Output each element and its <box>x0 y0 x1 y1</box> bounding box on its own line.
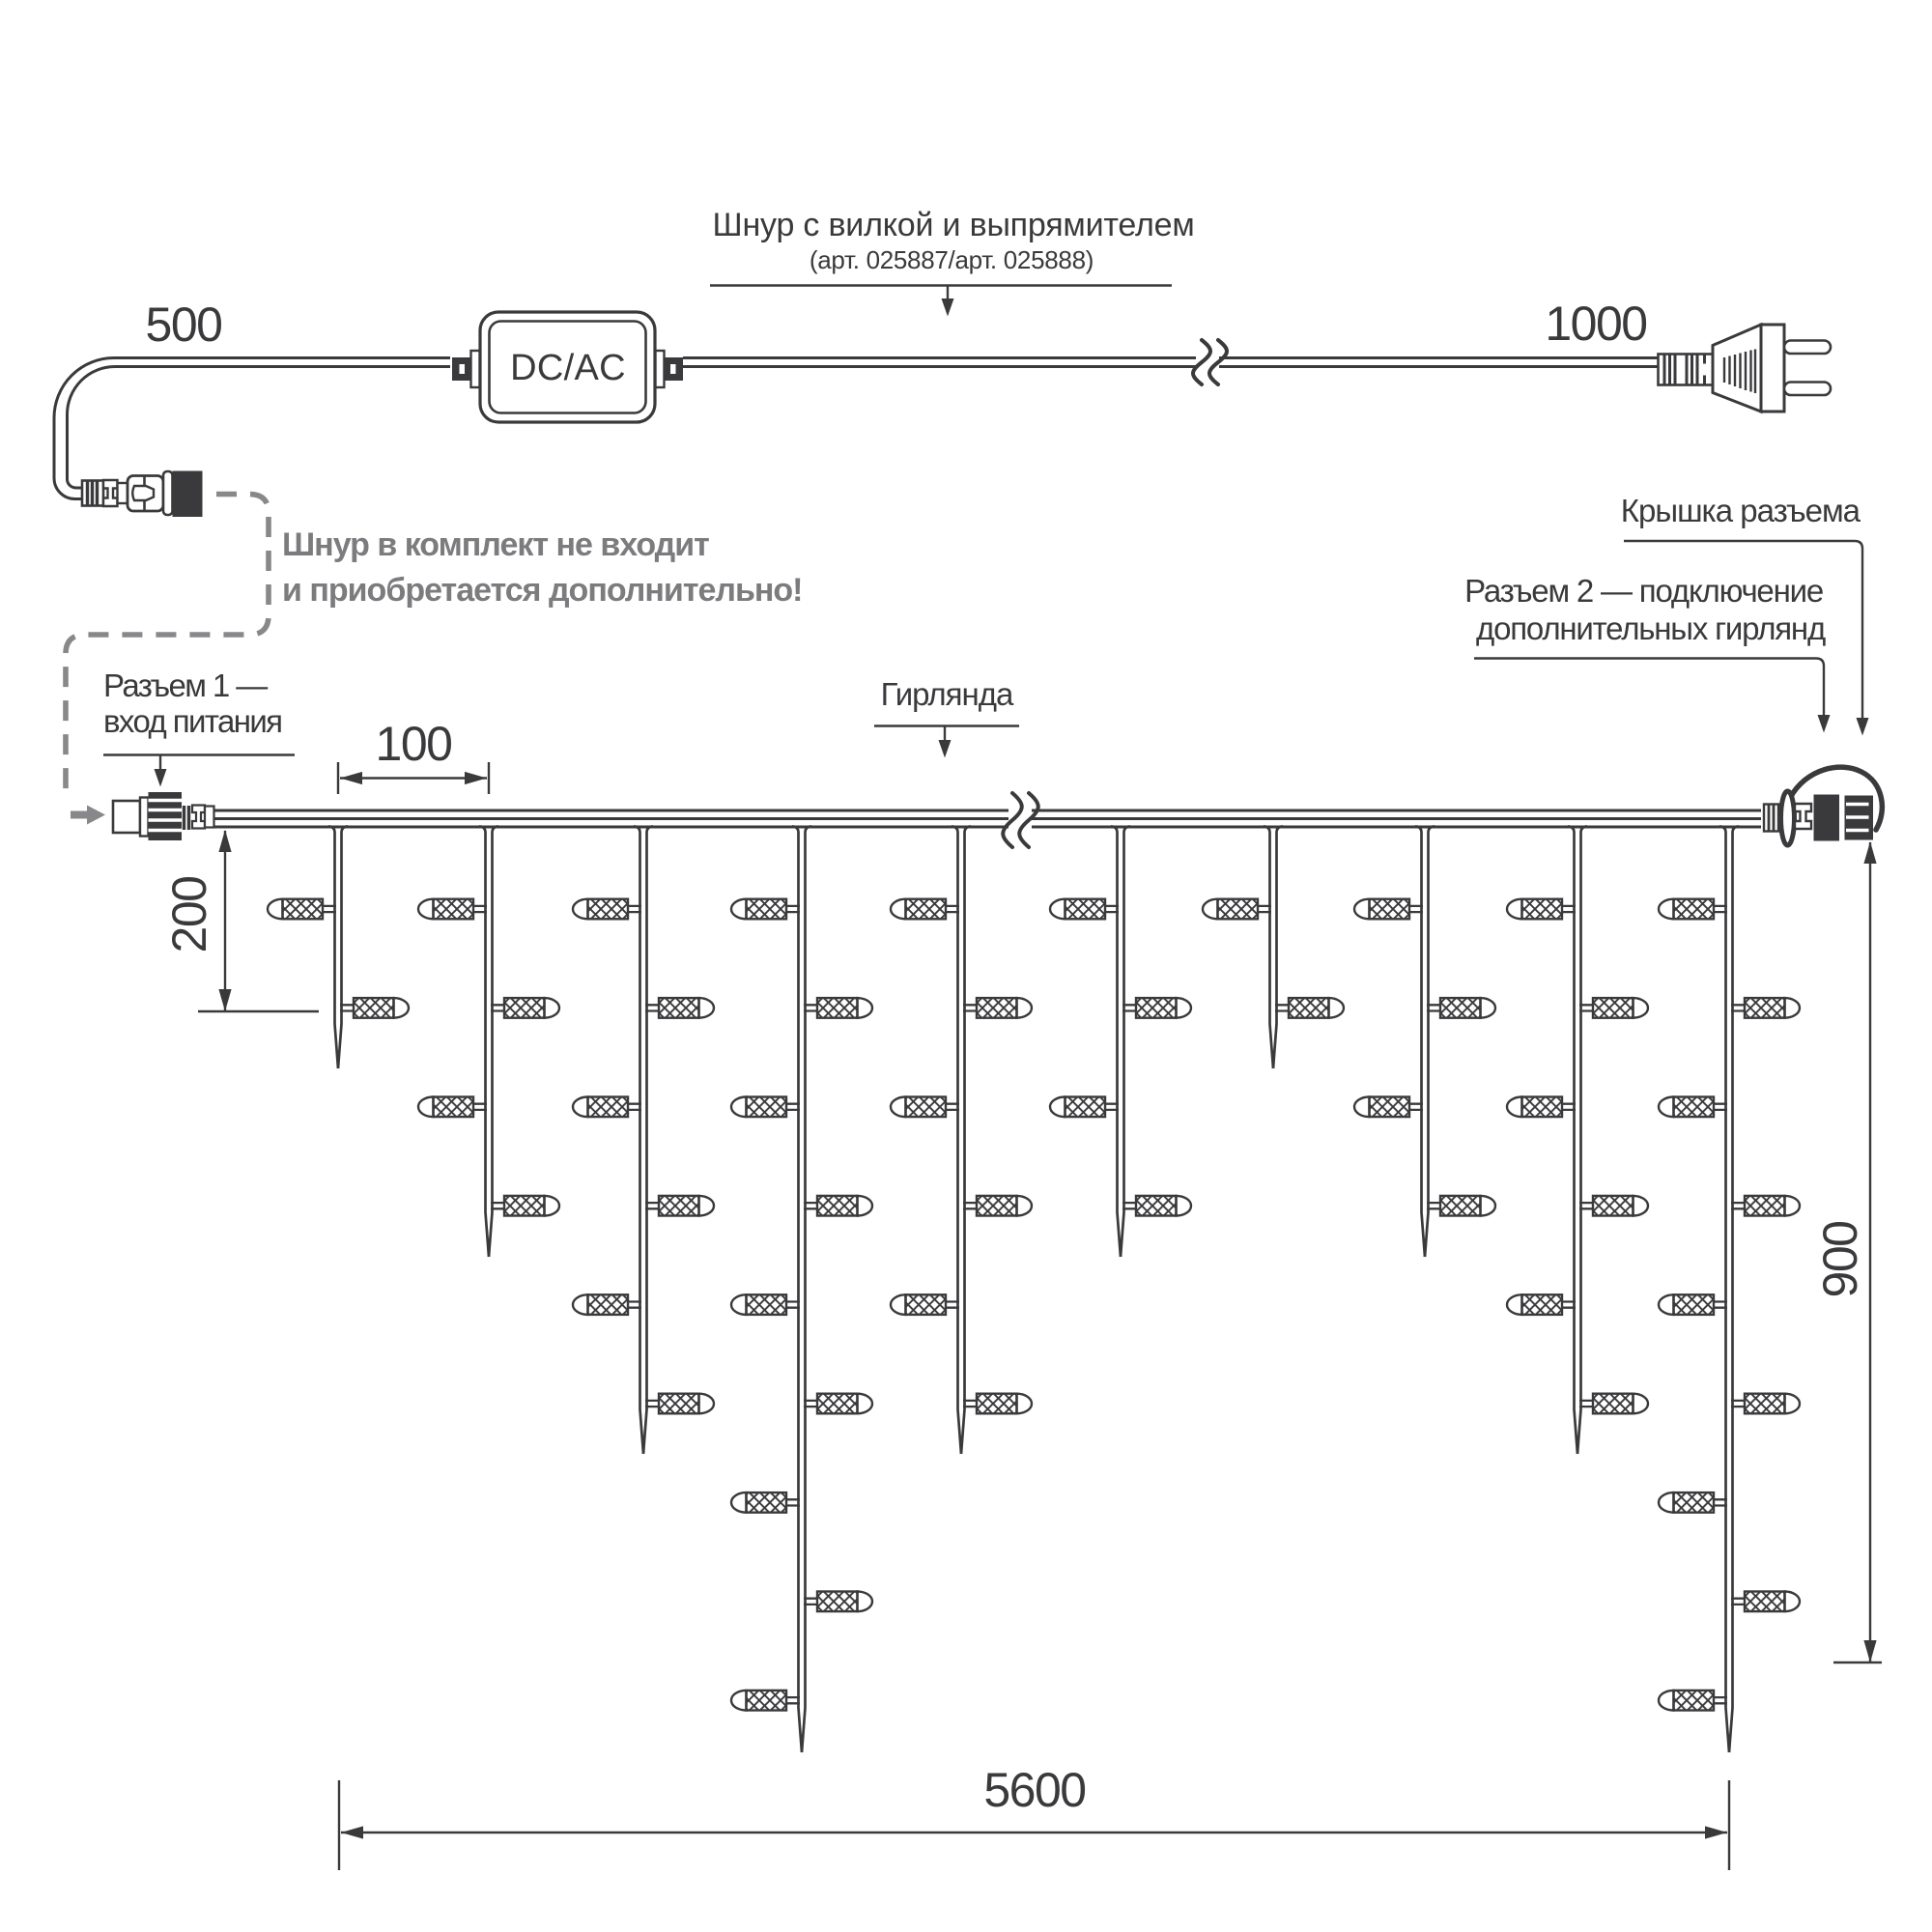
svg-text:5600: 5600 <box>983 1763 1085 1817</box>
svg-text:DC/AC: DC/AC <box>510 348 626 388</box>
svg-text:(арт. 025887/арт. 025888): (арт. 025887/арт. 025888) <box>810 245 1094 274</box>
svg-text:вход питания: вход питания <box>103 703 281 739</box>
svg-text:100: 100 <box>376 717 452 771</box>
svg-text:500: 500 <box>146 298 222 352</box>
svg-text:дополнительных гирлянд: дополнительных гирлянд <box>1476 611 1826 646</box>
svg-text:1000: 1000 <box>1545 297 1646 351</box>
svg-text:Гирлянда: Гирлянда <box>881 676 1014 712</box>
svg-text:200: 200 <box>162 877 216 953</box>
svg-text:Разъем 1 —: Разъем 1 — <box>103 668 268 703</box>
svg-text:900: 900 <box>1813 1222 1867 1298</box>
svg-text:и приобретается дополнительно!: и приобретается дополнительно! <box>282 572 803 609</box>
svg-text:Разъем 2 — подключение: Разъем 2 — подключение <box>1464 573 1823 609</box>
svg-text:Крышка разъема: Крышка разъема <box>1621 493 1861 528</box>
svg-text:Шнур в комплект не входит: Шнур в комплект не входит <box>282 526 709 563</box>
svg-text:Шнур с вилкой и выпрямителем: Шнур с вилкой и выпрямителем <box>712 207 1194 243</box>
